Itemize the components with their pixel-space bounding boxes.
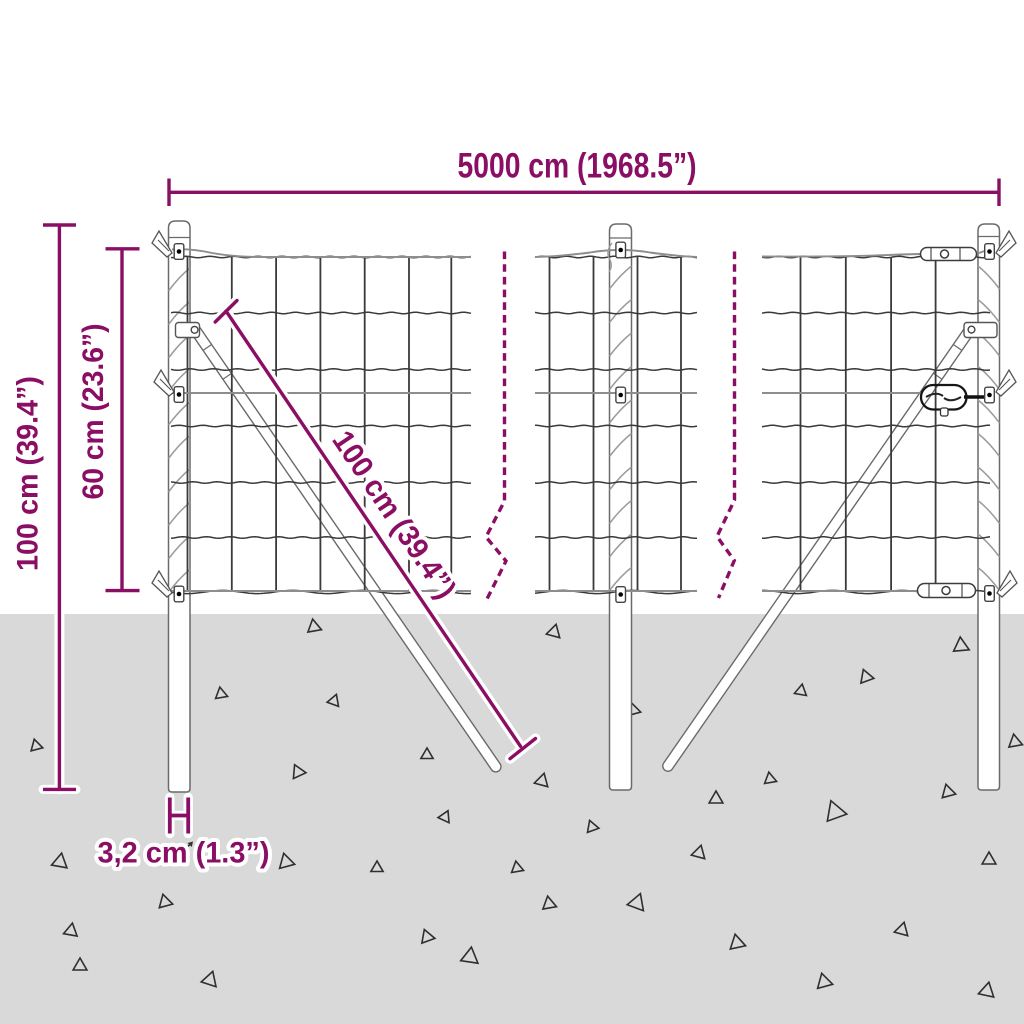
svg-text:100 cm (39.4”): 100 cm (39.4”): [12, 376, 45, 571]
svg-text:3,2 cm (1.3”): 3,2 cm (1.3”): [98, 837, 270, 870]
svg-text:5000 cm (1968.5”): 5000 cm (1968.5”): [458, 146, 697, 186]
svg-text:60 cm (23.6”): 60 cm (23.6”): [77, 324, 110, 500]
